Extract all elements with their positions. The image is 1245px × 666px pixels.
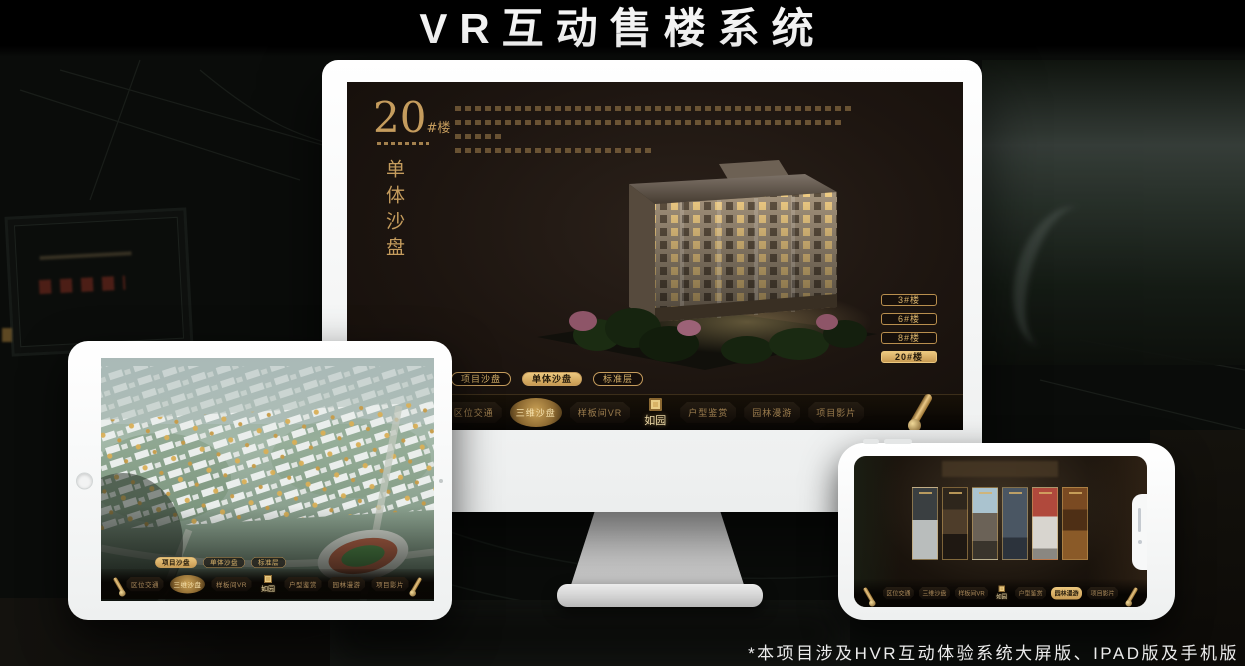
building-headline: 20#楼 单体沙盘 xyxy=(373,96,450,299)
scroll-ornament-icon[interactable] xyxy=(407,578,424,595)
scroll-ornament-icon[interactable] xyxy=(861,588,878,605)
tab-project-sandbox[interactable]: 项目沙盘 xyxy=(451,372,511,386)
tablet-menu-item-unit-plans[interactable]: 户型鉴赏 xyxy=(285,577,322,592)
background-river xyxy=(998,195,1124,359)
phone-scene-gate-beam xyxy=(942,461,1058,477)
footnote-text: *本项目涉及HVR互动体验系统大屏版、IPAD版及手机版 xyxy=(748,639,1239,664)
page-title: VR互动售楼系统 xyxy=(0,0,1245,57)
phone-menu-item-location-traffic[interactable]: 区位交通 xyxy=(883,587,914,600)
tablet-device: 项目沙盘 单体沙盘 标准层 区位交通 三维沙盘 样板间VR 如园 户型鉴赏 园林… xyxy=(68,341,452,620)
phone-menu-item-unit-plans[interactable]: 户型鉴赏 xyxy=(1015,587,1046,600)
description-line xyxy=(455,106,855,111)
brand-logo: 如园 xyxy=(996,586,1007,601)
menu-item-location-traffic[interactable]: 区位交通 xyxy=(446,402,502,423)
phone-main-menubar: 区位交通 三维沙盘 样板间VR 如园 户型鉴赏 园林漫游 项目影片 xyxy=(854,579,1147,607)
menu-item-unit-plans[interactable]: 户型鉴赏 xyxy=(680,402,736,423)
scroll-ornament-icon[interactable] xyxy=(1123,588,1140,605)
background-plaque xyxy=(4,207,193,356)
scene-panel[interactable] xyxy=(912,487,938,560)
background-aerial-photo xyxy=(982,60,1245,365)
tablet-screen: 项目沙盘 单体沙盘 标准层 区位交通 三维沙盘 样板间VR 如园 户型鉴赏 园林… xyxy=(101,358,434,601)
scene-panel[interactable] xyxy=(1002,487,1028,560)
phone-screen: 区位交通 三维沙盘 样板间VR 如园 户型鉴赏 园林漫游 项目影片 xyxy=(854,456,1147,607)
tablet-main-menubar: 区位交通 三维沙盘 样板间VR 如园 户型鉴赏 园林漫游 项目影片 xyxy=(101,569,434,599)
phone-side-button[interactable] xyxy=(863,439,879,444)
scene-panel-carousel xyxy=(912,487,1088,560)
scene-panel[interactable] xyxy=(972,487,998,560)
tablet-menu-item-location-traffic[interactable]: 区位交通 xyxy=(126,577,163,592)
menu-item-3d-sandbox[interactable]: 三维沙盘 xyxy=(510,398,562,427)
phone-menu-item-project-film[interactable]: 项目影片 xyxy=(1087,587,1118,600)
menu-item-project-film[interactable]: 项目影片 xyxy=(808,402,864,423)
tablet-tab-single-building-sandbox[interactable]: 单体沙盘 xyxy=(203,557,245,568)
background-gold-mark xyxy=(2,328,12,342)
headline-english-caption xyxy=(377,142,429,145)
tablet-sandbox-tabs: 项目沙盘 单体沙盘 标准层 xyxy=(155,557,434,568)
tablet-home-button[interactable] xyxy=(76,472,93,489)
brand-logo: 如园 xyxy=(644,398,666,428)
tablet-menu-item-garden-roam[interactable]: 园林漫游 xyxy=(328,577,365,592)
brand-seal-icon xyxy=(649,398,662,411)
phone-camera-icon xyxy=(1138,540,1142,544)
building-selector: 3#楼 6#楼 8#楼 20#楼 xyxy=(881,294,937,363)
menu-item-garden-roam[interactable]: 园林漫游 xyxy=(744,402,800,423)
phone-device: 区位交通 三维沙盘 样板间VR 如园 户型鉴赏 园林漫游 项目影片 xyxy=(838,443,1175,620)
brand-name: 如园 xyxy=(261,583,275,593)
building-button-20[interactable]: 20#楼 xyxy=(881,351,937,363)
menu-item-showroom-vr[interactable]: 样板间VR xyxy=(570,402,631,423)
scene-panel[interactable] xyxy=(942,487,968,560)
tablet-menu-item-project-film[interactable]: 项目影片 xyxy=(372,577,409,592)
building-3d-view[interactable] xyxy=(537,122,877,372)
brand-name: 如园 xyxy=(644,412,666,428)
plaque-text-line xyxy=(40,251,132,260)
building-button-8[interactable]: 8#楼 xyxy=(881,332,937,344)
scroll-ornament-icon[interactable] xyxy=(111,578,128,595)
tablet-camera-icon xyxy=(439,479,443,483)
building-button-3[interactable]: 3#楼 xyxy=(881,294,937,306)
sandbox-tabs: 项目沙盘 单体沙盘 标准层 xyxy=(451,372,643,386)
monitor-stand-base xyxy=(557,584,763,607)
description-line xyxy=(455,134,503,139)
brand-name: 如园 xyxy=(996,593,1007,601)
phone-menu-item-garden-roam[interactable]: 园林漫游 xyxy=(1051,587,1082,600)
monitor-stand-neck xyxy=(570,512,745,588)
brand-seal-icon xyxy=(998,586,1005,593)
phone-menu-item-showroom-vr[interactable]: 样板间VR xyxy=(955,587,988,600)
plaque-red-seal-text xyxy=(39,276,126,294)
tablet-ui-overlay: 项目沙盘 单体沙盘 标准层 区位交通 三维沙盘 样板间VR 如园 户型鉴赏 园林… xyxy=(101,557,434,601)
phone-side-button[interactable] xyxy=(884,439,912,444)
tablet-tab-standard-floor[interactable]: 标准层 xyxy=(251,557,286,568)
scene-panel[interactable] xyxy=(1032,487,1058,560)
phone-speaker-icon xyxy=(1138,508,1141,532)
scroll-ornament-icon[interactable] xyxy=(903,395,937,429)
tablet-menu-item-showroom-vr[interactable]: 样板间VR xyxy=(211,577,251,592)
scene-panel[interactable] xyxy=(1062,487,1088,560)
phone-menu-item-3d-sandbox[interactable]: 三维沙盘 xyxy=(919,587,950,600)
tab-single-building-sandbox[interactable]: 单体沙盘 xyxy=(522,372,582,386)
tablet-menu-item-3d-sandbox[interactable]: 三维沙盘 xyxy=(170,575,205,594)
building-number-suffix: #楼 xyxy=(426,121,450,136)
building-button-6[interactable]: 6#楼 xyxy=(881,313,937,325)
phone-notch xyxy=(1132,494,1147,570)
brand-logo: 如园 xyxy=(261,575,275,594)
stage: VR互动售楼系统 20#楼 单体沙盘 xyxy=(0,0,1245,666)
brand-seal-icon xyxy=(264,575,272,583)
tablet-tab-project-sandbox[interactable]: 项目沙盘 xyxy=(155,557,197,568)
tab-standard-floor[interactable]: 标准层 xyxy=(593,372,643,386)
headline-subtitle: 单体沙盘 xyxy=(381,159,408,299)
building-number: 20 xyxy=(373,93,426,142)
